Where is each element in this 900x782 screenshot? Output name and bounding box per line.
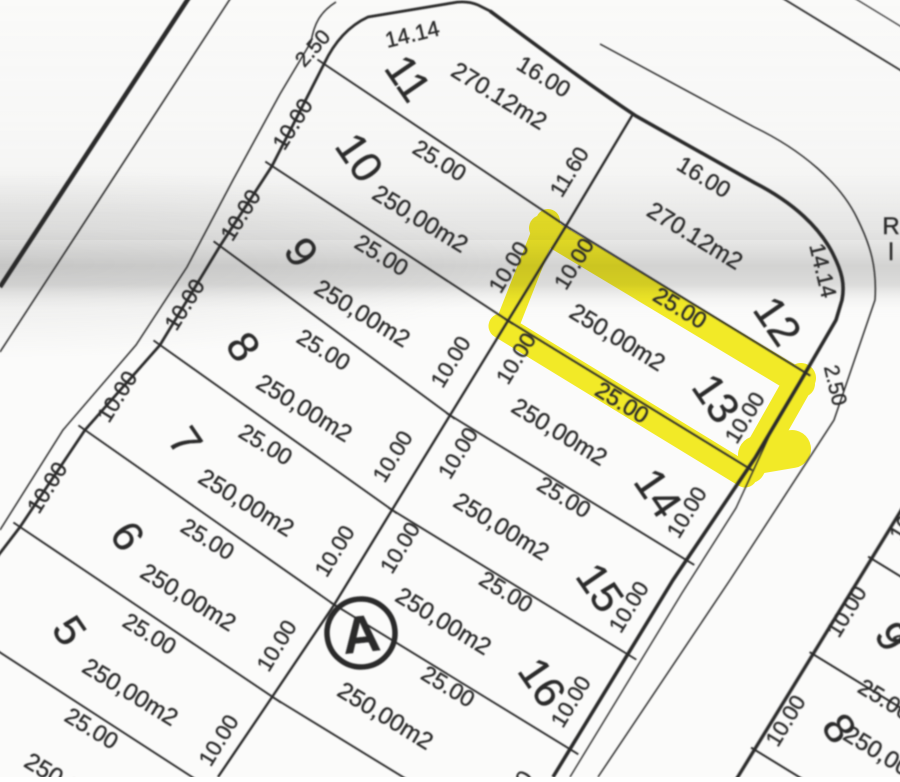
svg-text:A: A xyxy=(339,604,382,666)
svg-text:l: l xyxy=(888,239,893,266)
svg-text:R: R xyxy=(882,213,899,240)
